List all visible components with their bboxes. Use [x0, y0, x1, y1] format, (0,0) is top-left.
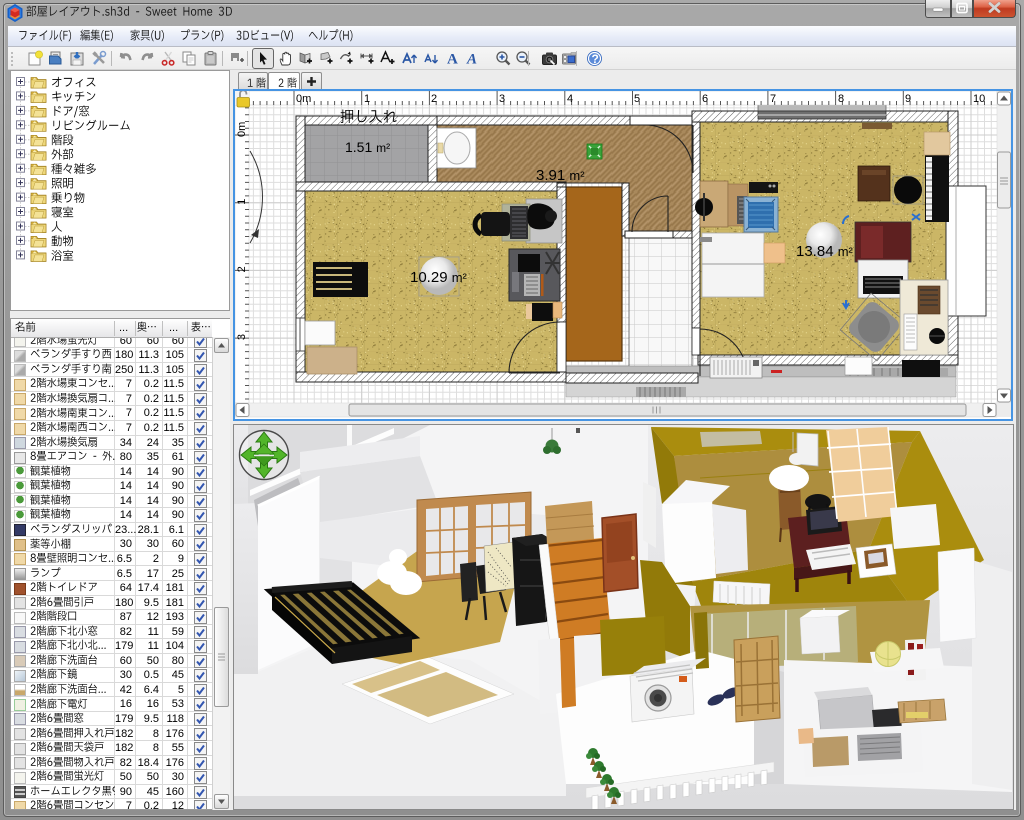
- svg-text:8: 8: [838, 93, 844, 105]
- svg-text:3: 3: [236, 334, 248, 340]
- svg-text:4: 4: [567, 93, 573, 105]
- svg-text:2: 2: [236, 266, 248, 272]
- svg-text:9: 9: [905, 93, 911, 105]
- svg-text:13.84 m²: 13.84 m²: [796, 243, 854, 260]
- svg-text:A: A: [466, 52, 477, 68]
- svg-text:5: 5: [634, 93, 640, 105]
- svg-text:10.29 m²: 10.29 m²: [410, 269, 468, 286]
- svg-text:2: 2: [431, 93, 437, 105]
- svg-text:0m: 0m: [236, 122, 248, 137]
- svg-text:?: ?: [592, 52, 599, 66]
- svg-text:10: 10: [973, 93, 985, 105]
- svg-text:7: 7: [770, 93, 776, 105]
- svg-text:1.51 m²: 1.51 m²: [345, 139, 390, 155]
- svg-text:0m: 0m: [296, 93, 311, 105]
- svg-text:A: A: [447, 52, 458, 68]
- svg-text:3.91 m²: 3.91 m²: [536, 167, 585, 184]
- svg-text:1: 1: [236, 199, 248, 205]
- svg-text:1: 1: [364, 93, 370, 105]
- svg-text:6: 6: [702, 93, 708, 105]
- svg-text:3: 3: [499, 93, 505, 105]
